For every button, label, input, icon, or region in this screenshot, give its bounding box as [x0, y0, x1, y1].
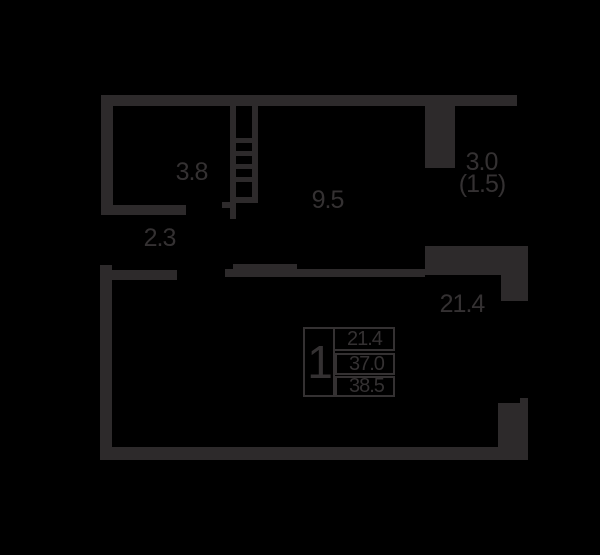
stair-entry-mark — [230, 202, 236, 219]
wall-exterior-right-upper-block — [425, 246, 528, 275]
wall-exterior-bottom — [100, 447, 498, 460]
wall-exterior-top — [101, 95, 517, 106]
wall-exterior-left-lower — [100, 265, 112, 460]
wall-exterior-right-upper-return — [501, 275, 528, 301]
legend-area-row: 37.0 — [335, 353, 395, 375]
room-area-label-storage: 3.8 — [169, 160, 214, 185]
stair-shaft-right-wall — [252, 106, 258, 203]
stair-step — [236, 138, 252, 143]
wall-storage-bottom — [101, 205, 186, 215]
wall-exterior-left-upper — [101, 95, 113, 215]
floor-plan: 3.8 9.5 2.3 3.0 (1.5) 21.4 1 21.4 37.0 3… — [0, 0, 600, 555]
apartment-info-legend: 1 21.4 37.0 38.5 — [303, 327, 395, 397]
legend-rooms-count: 1 — [303, 327, 335, 397]
stair-step — [236, 151, 252, 156]
wall-exterior-right-lower-block — [498, 403, 528, 460]
stair-step — [236, 164, 252, 169]
room-area-label-corridor: 2.3 — [137, 226, 182, 251]
room-area-label-living: 21.4 — [434, 292, 490, 317]
room-area-label-hallway: 9.5 — [305, 188, 350, 213]
wall-balcony-pier — [425, 106, 455, 168]
wall-living-top-left — [112, 270, 177, 280]
legend-area-row: 21.4 — [333, 327, 395, 351]
stair-step — [236, 177, 252, 182]
wall-living-top-right — [225, 269, 425, 277]
legend-area-row: 38.5 — [335, 376, 395, 397]
room-area-label-balcony-reduced: (1.5) — [451, 172, 513, 197]
